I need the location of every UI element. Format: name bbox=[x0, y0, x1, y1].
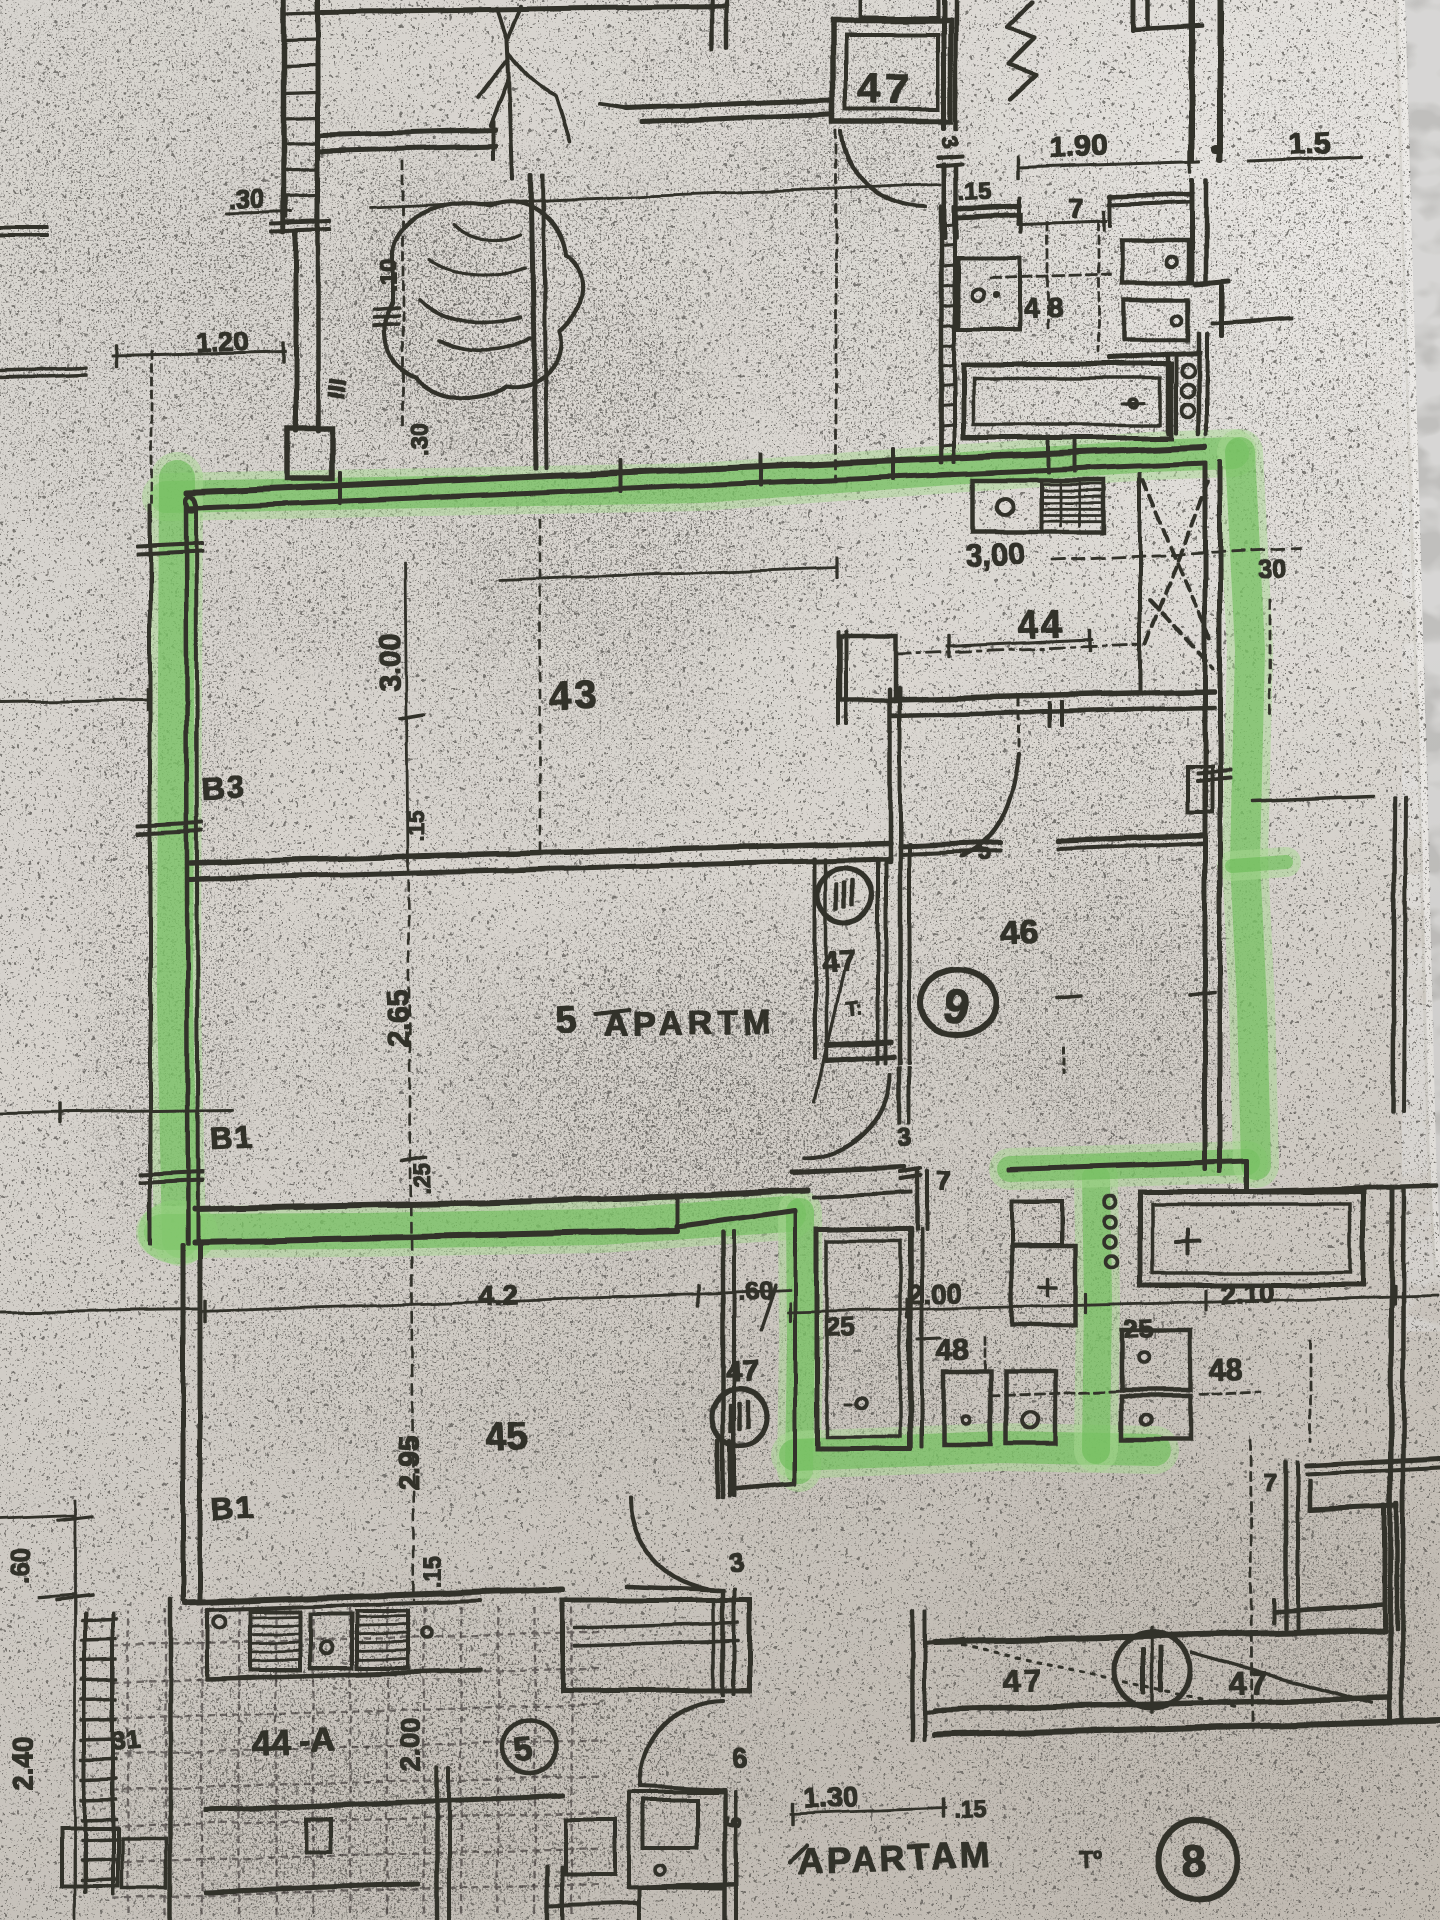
svg-text:2.10: 2.10 bbox=[1219, 1277, 1275, 1310]
svg-text:2.65: 2.65 bbox=[382, 990, 415, 1048]
svg-text:APARTAM: APARTAM bbox=[797, 1834, 994, 1882]
svg-text:47: 47 bbox=[821, 945, 856, 979]
svg-text:44: 44 bbox=[251, 1722, 292, 1764]
svg-text:48: 48 bbox=[1209, 1353, 1244, 1387]
svg-text:4 8: 4 8 bbox=[1023, 292, 1063, 324]
svg-text:8: 8 bbox=[1178, 1834, 1208, 1888]
svg-text:47: 47 bbox=[1228, 1665, 1271, 1702]
svg-text:5: 5 bbox=[977, 838, 992, 866]
svg-text:2.40: 2.40 bbox=[7, 1736, 38, 1791]
svg-text:47: 47 bbox=[858, 65, 913, 112]
svg-text:1.90: 1.90 bbox=[1049, 129, 1109, 165]
svg-text:-A: -A bbox=[299, 1721, 336, 1760]
svg-text:43: 43 bbox=[549, 673, 601, 719]
svg-text:7: 7 bbox=[1068, 193, 1084, 224]
svg-text:30: 30 bbox=[1257, 553, 1287, 584]
svg-text:B1: B1 bbox=[210, 1489, 257, 1527]
svg-text:III: III bbox=[323, 377, 353, 401]
svg-text:T:: T: bbox=[845, 998, 864, 1021]
svg-text:31: 31 bbox=[110, 1724, 141, 1756]
svg-text:25: 25 bbox=[825, 1311, 855, 1342]
svg-text:7: 7 bbox=[936, 1166, 950, 1196]
svg-text:.60: .60 bbox=[6, 1548, 36, 1584]
svg-text:B3: B3 bbox=[200, 769, 247, 807]
svg-text:.25: .25 bbox=[409, 1162, 435, 1194]
svg-text:B1: B1 bbox=[208, 1119, 255, 1157]
svg-text:4.2: 4.2 bbox=[479, 1280, 518, 1311]
svg-text:5: 5 bbox=[554, 1000, 578, 1043]
svg-text:47: 47 bbox=[725, 1355, 760, 1389]
svg-text:.15: .15 bbox=[419, 1556, 445, 1588]
svg-text:6: 6 bbox=[731, 1742, 749, 1774]
svg-text:.30: .30 bbox=[227, 183, 264, 214]
svg-text:3.00: 3.00 bbox=[374, 634, 407, 692]
svg-text:3: 3 bbox=[896, 1121, 913, 1152]
svg-text:.15: .15 bbox=[957, 177, 992, 206]
svg-text:1.5: 1.5 bbox=[1289, 127, 1332, 162]
svg-text:46: 46 bbox=[999, 914, 1038, 953]
svg-text:47: 47 bbox=[1002, 1662, 1045, 1699]
svg-text:.15: .15 bbox=[953, 1796, 987, 1824]
svg-text:1.30: 1.30 bbox=[803, 1781, 859, 1814]
svg-text:2.95: 2.95 bbox=[393, 1436, 424, 1491]
svg-text:45: 45 bbox=[485, 1416, 529, 1459]
svg-text:7: 7 bbox=[1263, 1468, 1277, 1498]
svg-text:2.00: 2.00 bbox=[907, 1277, 963, 1310]
svg-text:Tº: Tº bbox=[1079, 1846, 1104, 1874]
svg-text:2.00: 2.00 bbox=[395, 1718, 426, 1773]
svg-text:.30: .30 bbox=[407, 423, 434, 456]
svg-text:3,00: 3,00 bbox=[965, 537, 1025, 573]
svg-text:.10: .10 bbox=[375, 259, 402, 292]
